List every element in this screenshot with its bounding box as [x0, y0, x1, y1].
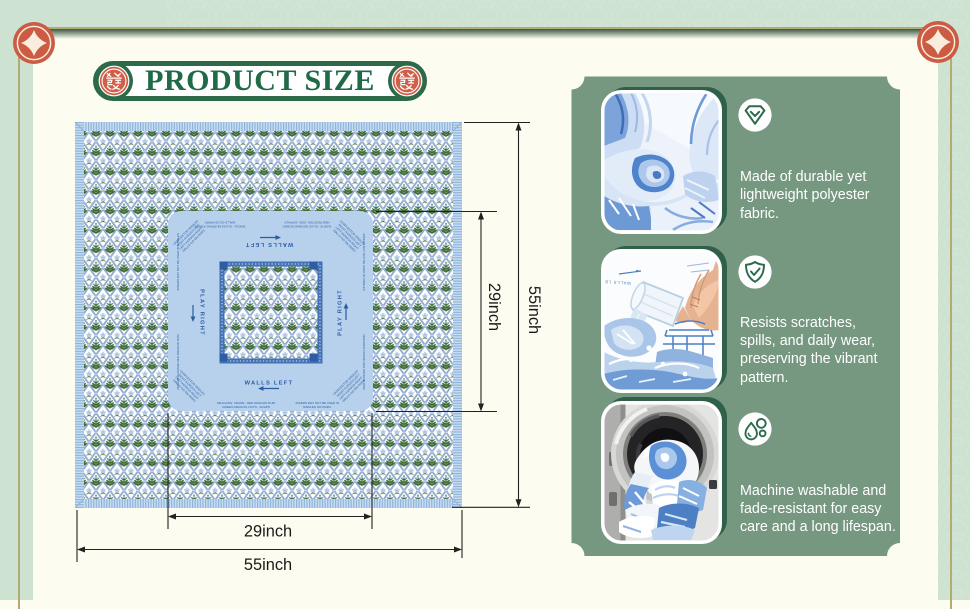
- svg-text:29inch: 29inch: [244, 522, 292, 540]
- svg-text:29inch: 29inch: [485, 283, 503, 331]
- svg-text:55inch: 55inch: [244, 556, 292, 574]
- svg-text:55inch: 55inch: [525, 286, 543, 334]
